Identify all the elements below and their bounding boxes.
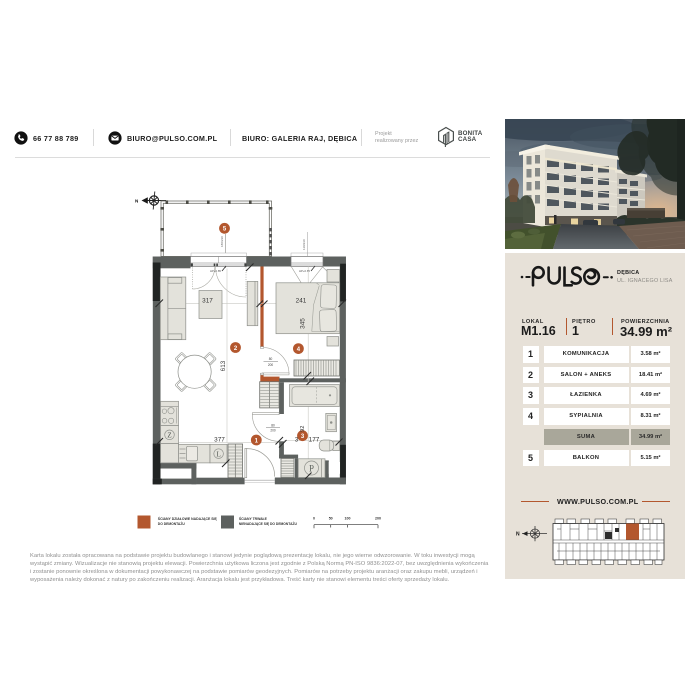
svg-text:377: 377 — [214, 436, 225, 443]
svg-text:80: 80 — [269, 357, 273, 361]
svg-text:DO DEMONTAŻU: DO DEMONTAŻU — [158, 522, 186, 526]
svg-text:613: 613 — [220, 360, 227, 371]
svg-text:180/230: 180/230 — [220, 236, 224, 247]
svg-text:100: 100 — [345, 517, 351, 521]
svg-text:3: 3 — [295, 436, 299, 443]
svg-text:110/230: 110/230 — [302, 239, 306, 250]
svg-text:N: N — [135, 198, 139, 203]
svg-text:241: 241 — [296, 298, 307, 305]
svg-text:92: 92 — [300, 426, 306, 432]
svg-text:P: P — [309, 463, 314, 473]
svg-text:ŚCIANY DZIAŁOWE NADAJĄCE SIĘ: ŚCIANY DZIAŁOWE NADAJĄCE SIĘ — [158, 516, 217, 521]
svg-text:HP+0.85: HP+0.85 — [299, 269, 310, 273]
svg-text:200: 200 — [268, 363, 274, 367]
svg-text:177: 177 — [309, 436, 320, 443]
svg-text:N: N — [516, 532, 520, 538]
svg-text:ŚCIANY TRWAŁE: ŚCIANY TRWAŁE — [239, 516, 267, 521]
svg-text:200: 200 — [375, 517, 381, 521]
svg-text:NIENADAJĄCE SIĘ DO DEMONTAŻU: NIENADAJĄCE SIĘ DO DEMONTAŻU — [239, 522, 298, 526]
svg-text:L: L — [216, 450, 220, 458]
svg-text:HP+0.85: HP+0.85 — [210, 269, 221, 273]
svg-text:345: 345 — [300, 318, 307, 329]
svg-text:317: 317 — [202, 298, 213, 305]
svg-text:Z: Z — [167, 431, 171, 439]
svg-text:200: 200 — [270, 428, 276, 432]
svg-text:80: 80 — [271, 424, 275, 428]
svg-text:50: 50 — [329, 517, 333, 521]
svg-text:0: 0 — [313, 517, 315, 521]
